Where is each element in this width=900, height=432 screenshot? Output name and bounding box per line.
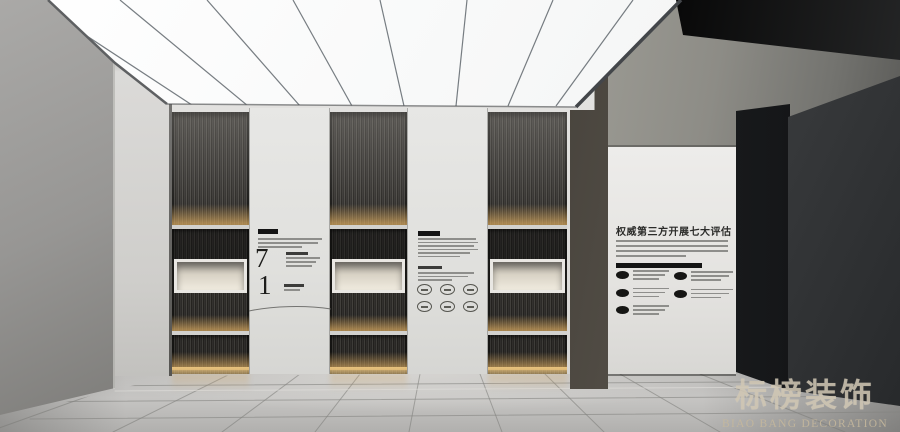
evaluation-list-right bbox=[674, 271, 733, 298]
evaluation-item-icon bbox=[674, 272, 687, 280]
shelf-warm-light bbox=[330, 315, 407, 331]
base-led-strip bbox=[172, 367, 249, 374]
shelf-niche bbox=[330, 229, 407, 259]
evaluation-list-left bbox=[616, 270, 669, 315]
evaluation-item-text bbox=[633, 288, 669, 298]
laurel-badge bbox=[463, 284, 478, 295]
lit-display-box bbox=[332, 259, 405, 293]
lit-display-box bbox=[174, 259, 247, 293]
evaluation-item-icon bbox=[616, 306, 629, 314]
evaluation-divider-bar bbox=[616, 263, 702, 268]
evaluation-item bbox=[616, 270, 669, 280]
number-seven-caption-lines bbox=[286, 257, 320, 267]
shelf-warm-light bbox=[488, 315, 567, 331]
shelf-board bbox=[488, 331, 567, 335]
evaluation-paragraph bbox=[616, 240, 728, 257]
evaluation-item-text bbox=[633, 305, 669, 315]
panel-middle-title-bar bbox=[418, 231, 440, 236]
shelf-unit-left bbox=[172, 112, 249, 374]
evaluation-item bbox=[674, 289, 733, 299]
number-one-caption bbox=[284, 284, 304, 287]
left-wall-edge-highlight bbox=[113, 63, 115, 389]
shelf-niche bbox=[488, 229, 567, 259]
shelf-board bbox=[330, 331, 407, 335]
evaluation-title: 权威第三方开展七大评估 bbox=[616, 223, 732, 238]
base-led-strip bbox=[330, 367, 407, 374]
shelf-unit-middle bbox=[330, 112, 407, 374]
panel-middle-subparagraph bbox=[418, 272, 474, 281]
laurel-badge bbox=[463, 301, 478, 312]
evaluation-item-icon bbox=[674, 290, 687, 298]
shelf-light-floor-reflection bbox=[488, 374, 567, 391]
shelf-unit-right bbox=[488, 112, 567, 374]
evaluation-item-text bbox=[691, 271, 733, 281]
concealed-door-panel bbox=[115, 58, 172, 376]
evaluation-item bbox=[616, 305, 669, 315]
big-number-seven: 7 bbox=[255, 245, 269, 272]
brand-watermark: 标榜装饰 BIAO BANG DECORATION bbox=[712, 370, 898, 430]
big-number-one: 1 bbox=[258, 272, 272, 299]
evaluation-text-wall: 权威第三方开展七大评估 bbox=[608, 147, 736, 374]
evaluation-item-icon bbox=[616, 271, 629, 279]
shelf-warm-light bbox=[330, 204, 407, 225]
shelf-warm-light bbox=[488, 204, 567, 225]
lit-display-box bbox=[490, 259, 565, 293]
shelf-warm-light bbox=[172, 204, 249, 225]
shelf-board bbox=[172, 331, 249, 335]
evaluation-item bbox=[674, 271, 733, 281]
watermark-english: BIAO BANG DECORATION bbox=[712, 418, 898, 430]
evaluation-item-icon bbox=[616, 289, 629, 297]
laurel-badge bbox=[440, 284, 455, 295]
panel-middle-paragraph bbox=[418, 238, 478, 257]
evaluation-item-text bbox=[633, 270, 669, 280]
number-seven-caption bbox=[286, 252, 308, 255]
panel-left-title-bar bbox=[258, 229, 278, 234]
evaluation-item-text bbox=[691, 289, 733, 299]
panel-middle-subhead bbox=[418, 266, 442, 269]
shelf-warm-light bbox=[172, 315, 249, 331]
watermark-chinese: 标榜装饰 bbox=[712, 370, 898, 416]
shelf-light-floor-reflection bbox=[172, 374, 249, 391]
number-one-caption-lines bbox=[284, 289, 300, 291]
laurel-badge bbox=[417, 301, 432, 312]
shelf-niche bbox=[172, 229, 249, 259]
evaluation-item bbox=[616, 288, 669, 298]
base-led-strip bbox=[488, 367, 567, 374]
interior-render-scene: 7 1 权威第三方开展七大评估 bbox=[0, 0, 900, 432]
laurel-badges bbox=[417, 284, 487, 312]
shelf-light-floor-reflection bbox=[330, 374, 407, 391]
laurel-badge bbox=[417, 284, 432, 295]
laurel-badge bbox=[440, 301, 455, 312]
